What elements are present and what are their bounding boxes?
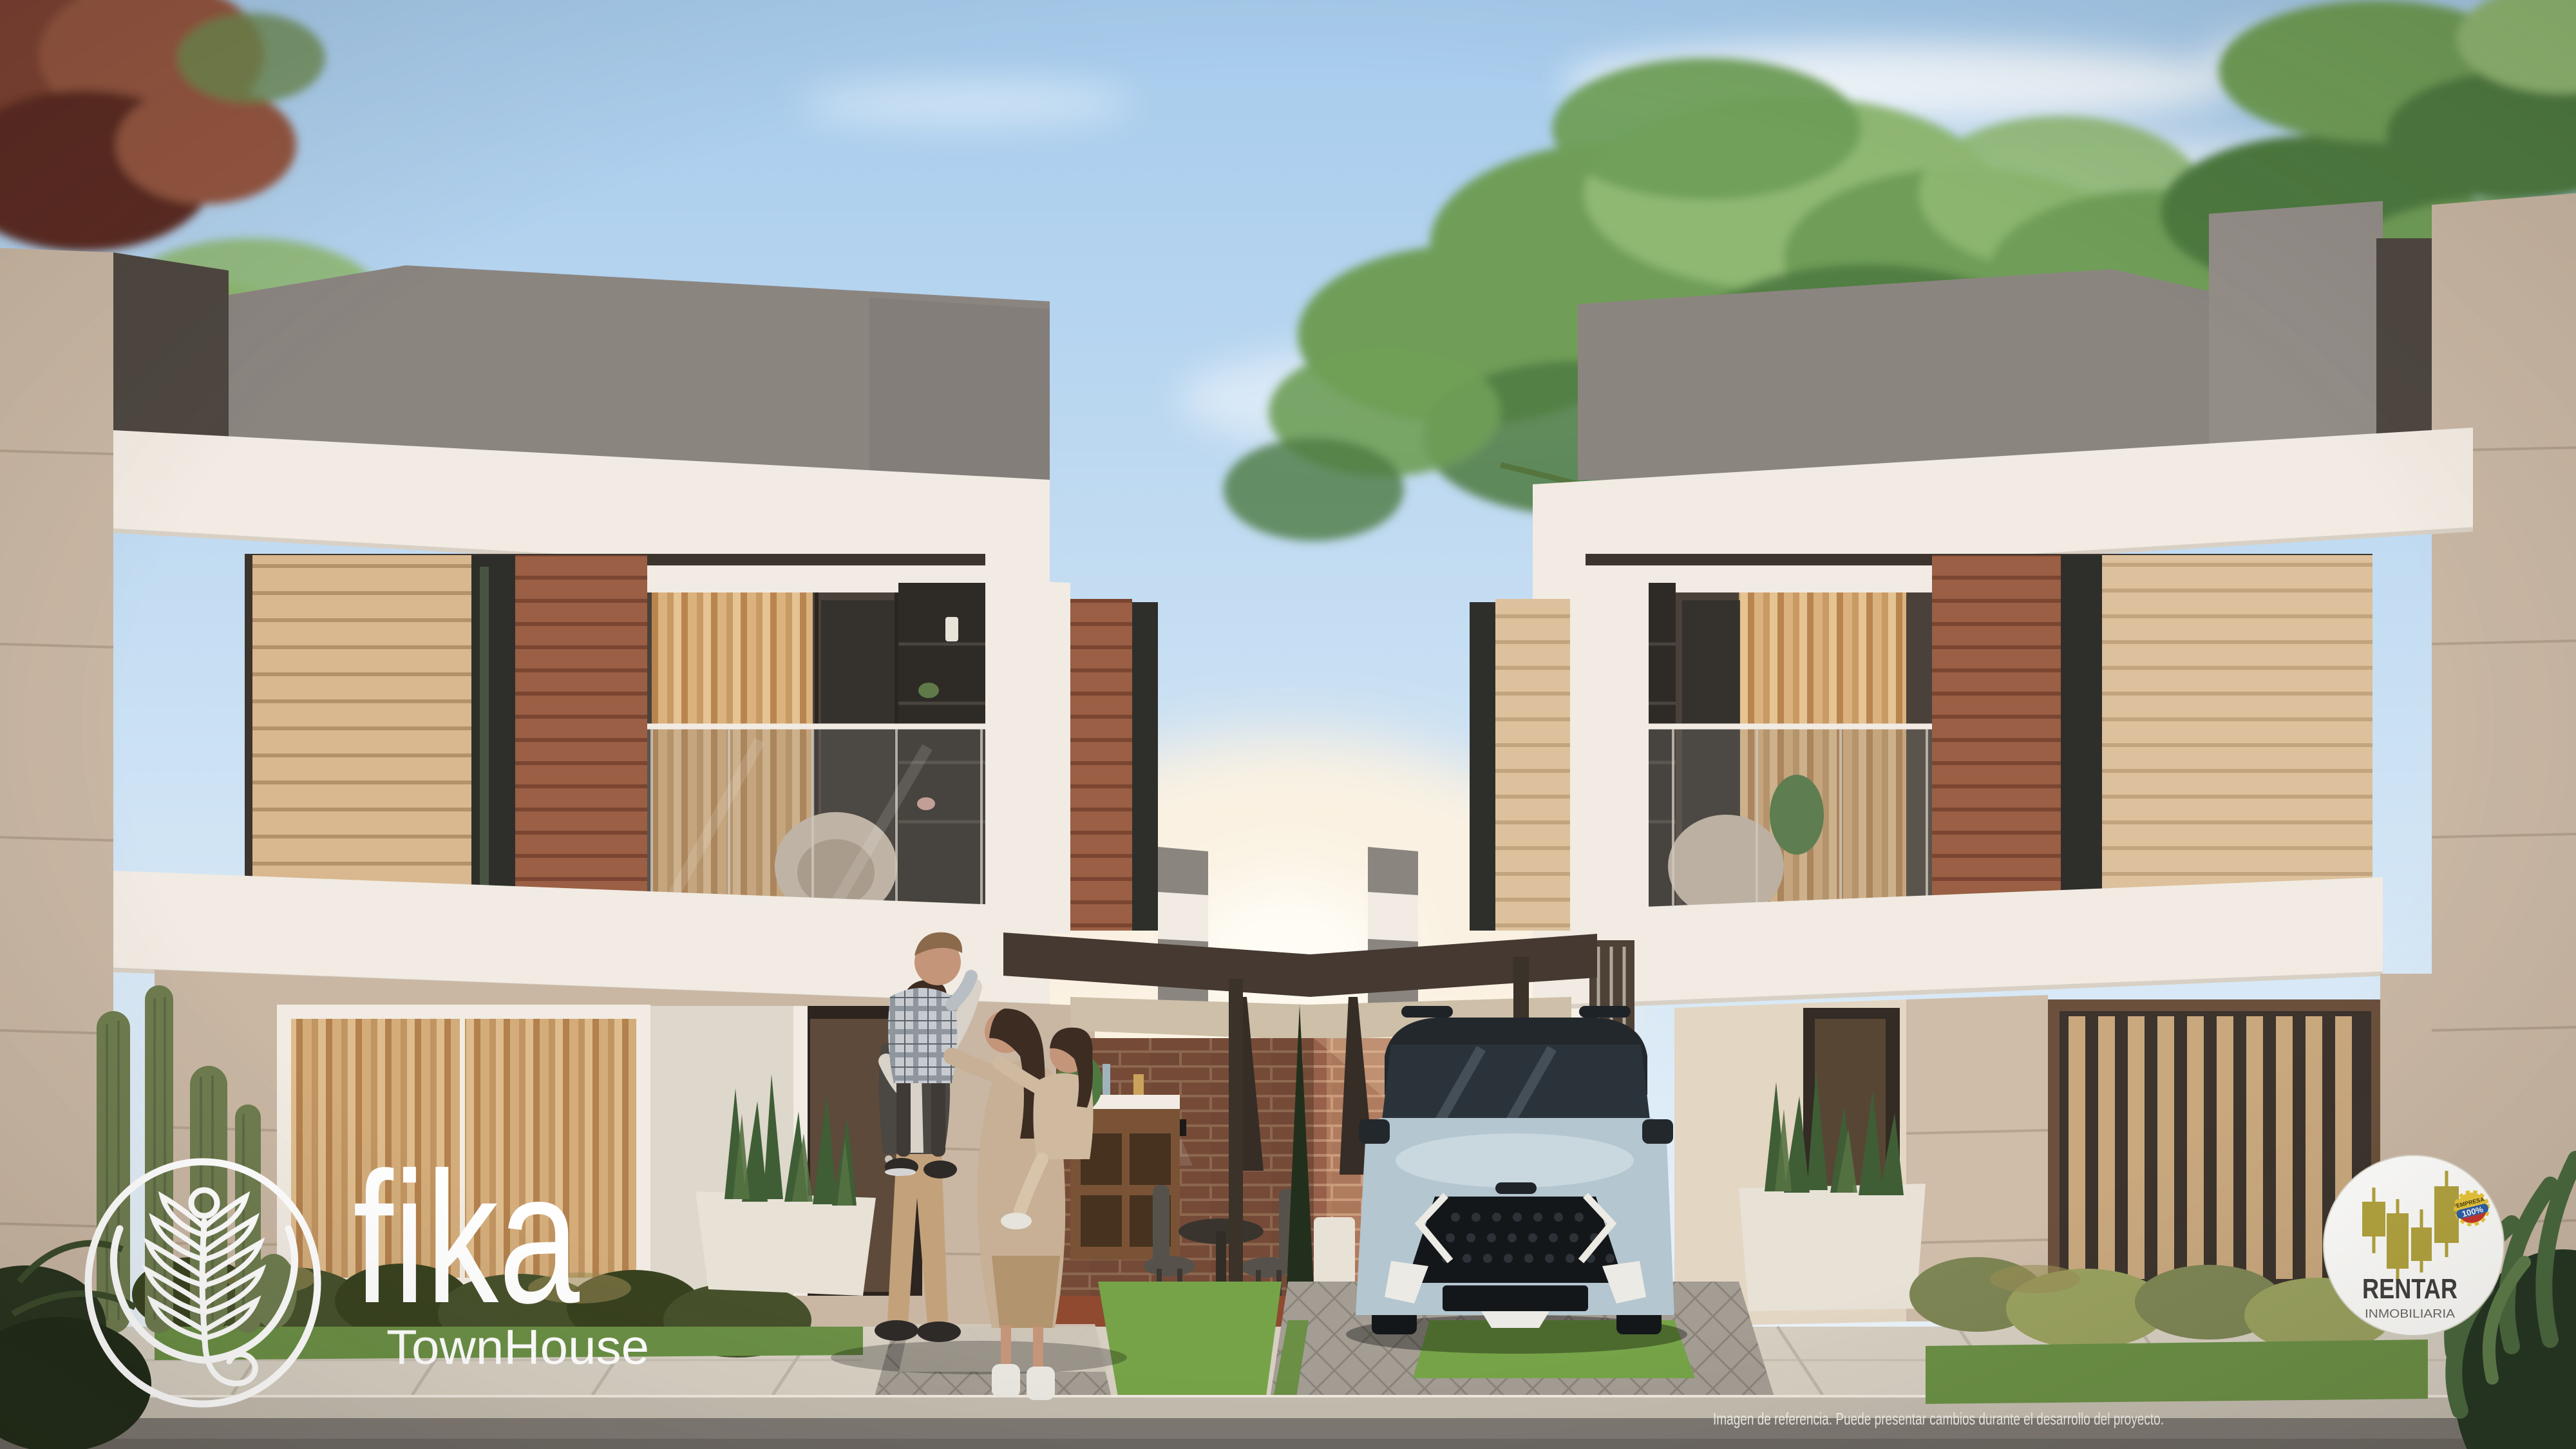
- townhouse-render: fika TownHouse EMPRESA 100% RENTAR INMOB…: [0, 0, 2576, 1449]
- vignette-overlay: [0, 0, 2576, 1449]
- render-canvas: fika TownHouse EMPRESA 100% RENTAR INMOB…: [0, 0, 2576, 1449]
